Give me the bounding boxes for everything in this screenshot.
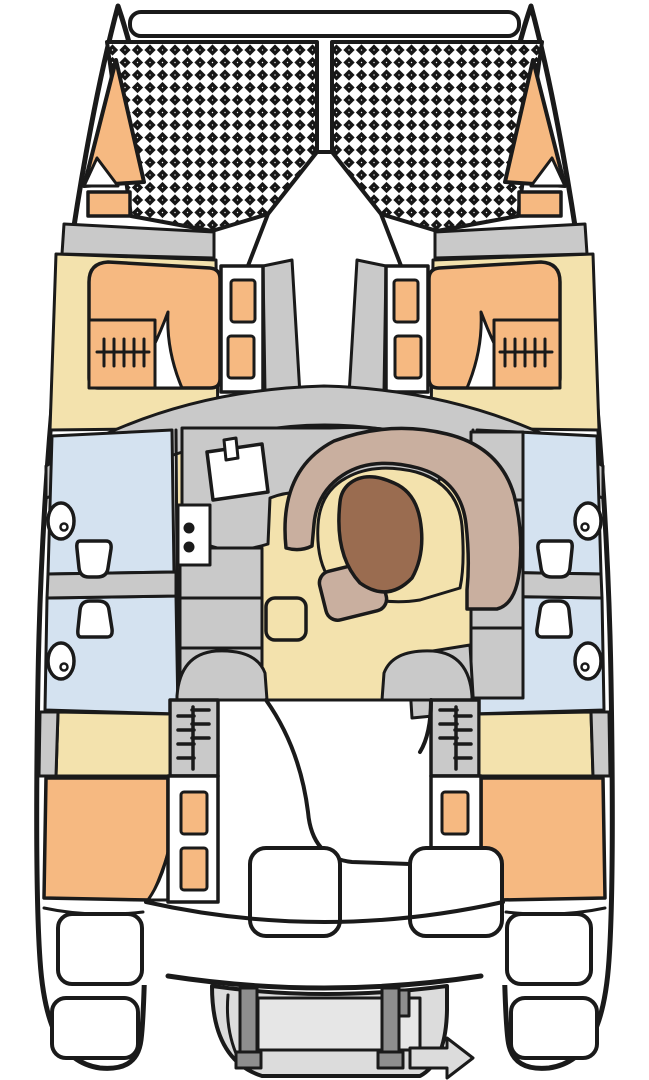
stove-unit bbox=[178, 505, 210, 565]
galley-faucet-icon bbox=[224, 438, 238, 460]
davit-foot bbox=[236, 1052, 261, 1068]
saloon-table bbox=[339, 477, 422, 592]
davit bbox=[240, 988, 257, 1058]
davit-bracket bbox=[399, 990, 409, 1016]
heads-port bbox=[45, 430, 178, 714]
davit-foot bbox=[378, 1052, 403, 1068]
catamaran-deck-plan bbox=[0, 0, 649, 1080]
stove-burner-icon bbox=[184, 523, 195, 534]
deck-plan-drawing bbox=[0, 0, 649, 1080]
cockpit-bench bbox=[410, 848, 502, 936]
davit bbox=[382, 988, 399, 1058]
forward-crossbeam bbox=[130, 12, 519, 36]
dinghy-assembly bbox=[212, 986, 473, 1078]
stove-burner-icon bbox=[184, 542, 195, 553]
